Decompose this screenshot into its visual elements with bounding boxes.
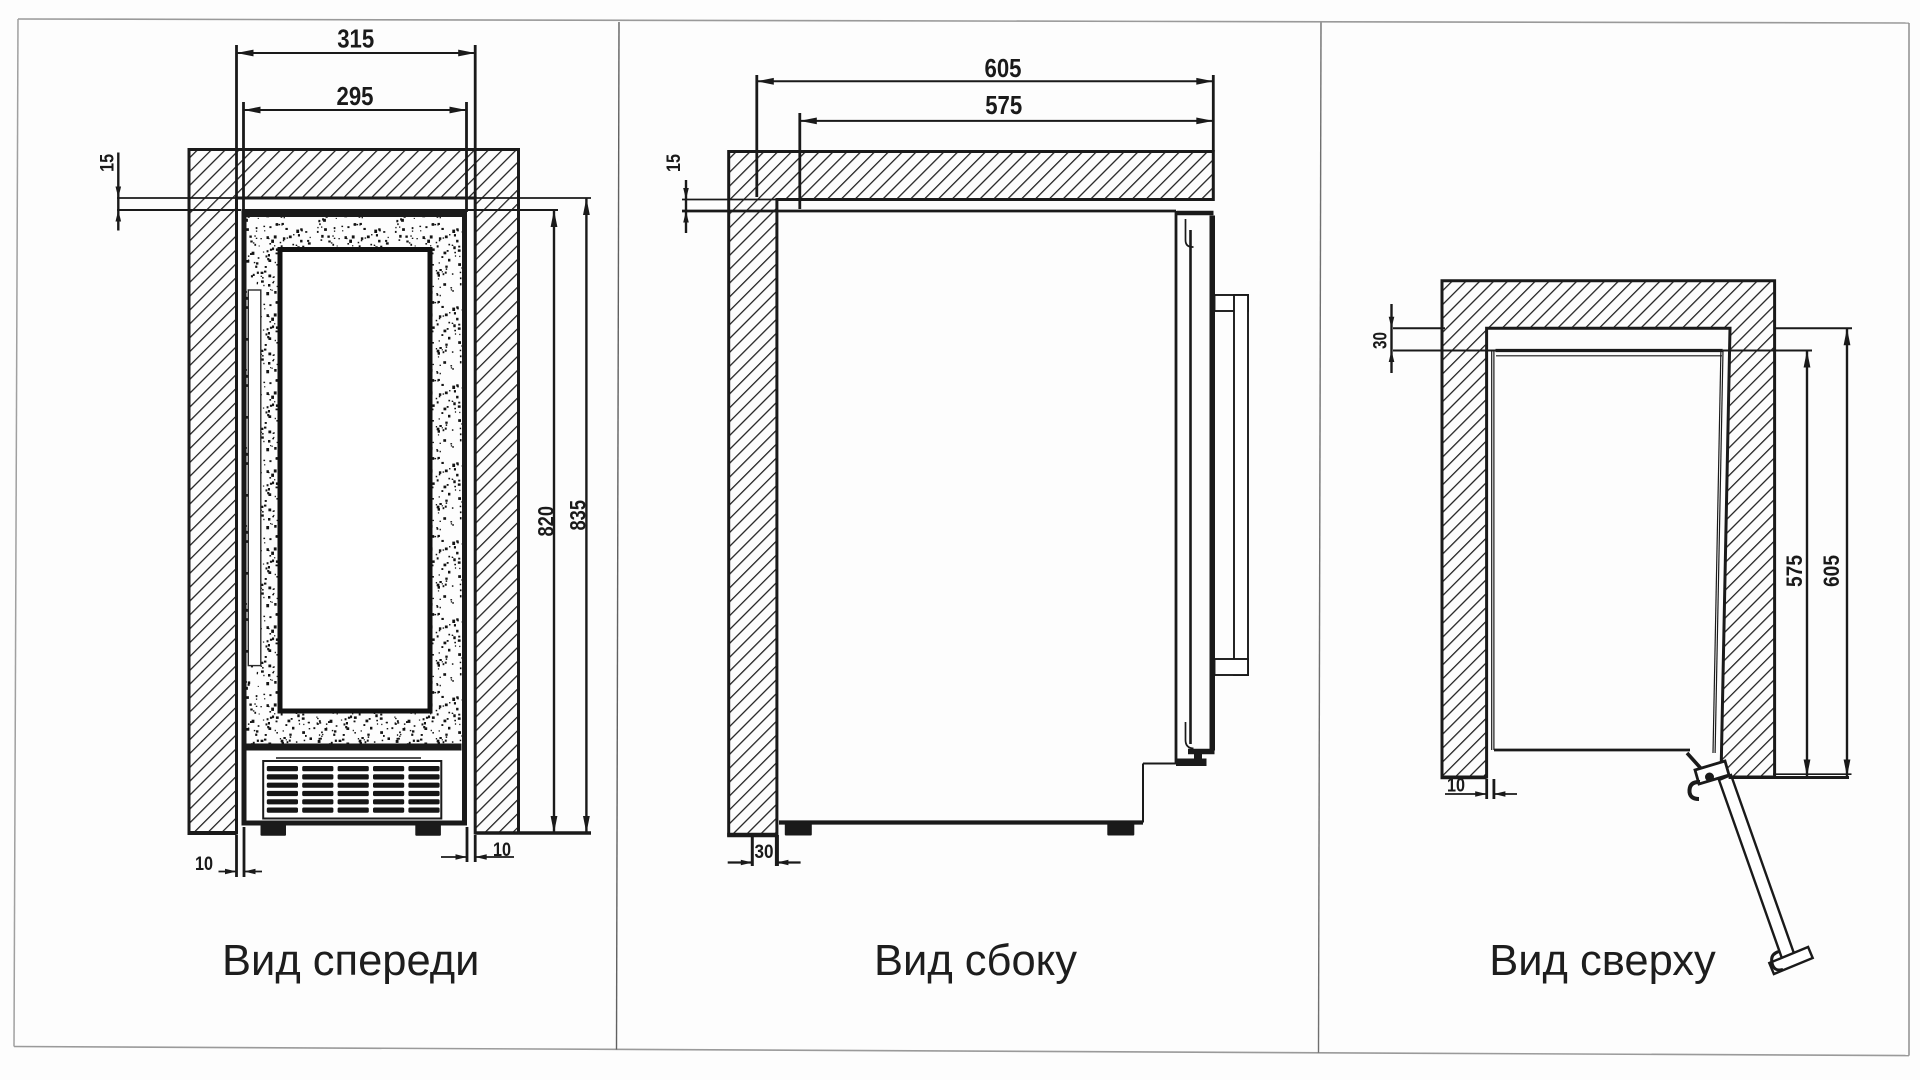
svg-text:30: 30	[1371, 332, 1392, 349]
svg-text:Вид сбоку: Вид сбоку	[874, 937, 1077, 985]
svg-text:575: 575	[985, 90, 1022, 120]
svg-text:10: 10	[195, 854, 213, 875]
svg-text:835: 835	[566, 500, 591, 531]
svg-text:10: 10	[493, 840, 511, 861]
svg-text:605: 605	[985, 53, 1022, 83]
svg-text:605: 605	[1819, 555, 1844, 587]
svg-text:315: 315	[337, 24, 374, 54]
svg-text:15: 15	[98, 154, 119, 172]
svg-text:820: 820	[534, 506, 559, 537]
svg-text:295: 295	[337, 81, 374, 111]
svg-text:Вид сверху: Вид сверху	[1489, 937, 1716, 985]
svg-text:30: 30	[755, 842, 774, 863]
svg-text:Вид спереди: Вид спереди	[222, 937, 479, 985]
svg-text:575: 575	[1782, 555, 1807, 587]
svg-text:10: 10	[1447, 776, 1465, 797]
svg-text:15: 15	[664, 154, 685, 172]
